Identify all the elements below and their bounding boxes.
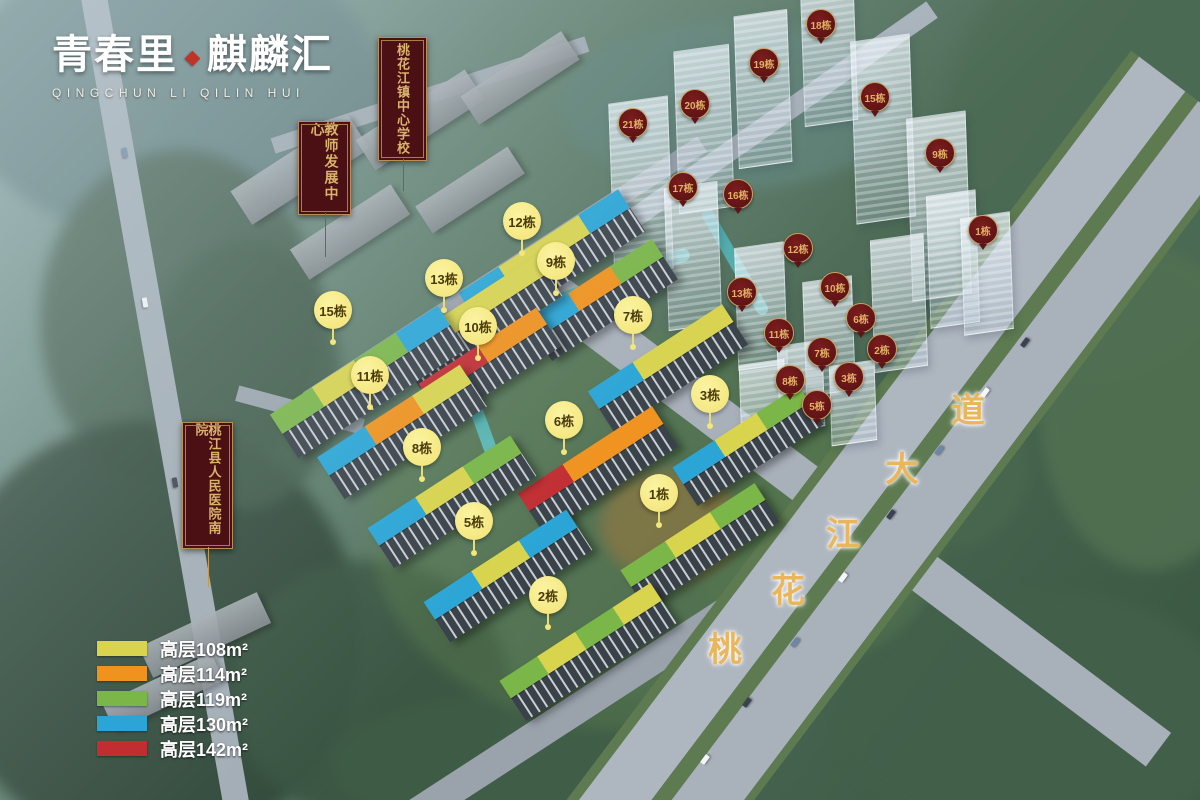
legend-color-swatch: [97, 641, 147, 656]
badge-pointer: [760, 77, 768, 83]
badge-pointer: [521, 240, 523, 250]
badge-pointer: [831, 301, 839, 307]
badge-pointer-dot: [545, 624, 551, 630]
badge-pointer-dot: [707, 423, 713, 429]
future-building-badge-17栋: 17栋: [668, 172, 698, 202]
legend-row: 高层119m²: [97, 691, 248, 706]
badge-pointer: [332, 329, 334, 339]
badge-pointer-dot: [441, 307, 447, 313]
badge-label: 1栋: [649, 484, 669, 503]
project-logo-title: 青春里 麒麟汇: [52, 22, 333, 80]
badge-pointer: [817, 38, 825, 44]
badge-pointer: [658, 512, 660, 522]
badge-label: 21栋: [622, 116, 643, 131]
building-badge-7栋: 7栋: [614, 296, 652, 334]
badge-pointer: [477, 345, 479, 355]
badge-label: 15栋: [864, 90, 885, 105]
badge-pointer: [473, 540, 475, 550]
callout-hospital-box: 桃江县人民医院南院: [182, 422, 233, 549]
badge-label: 11栋: [357, 366, 384, 385]
callout-teacher-center: 教师发展中心: [298, 121, 351, 215]
badge-label: 18栋: [810, 17, 831, 32]
future-building-badge-1栋: 1栋: [968, 215, 998, 245]
badge-label: 12栋: [508, 212, 535, 231]
future-building-badge-21栋: 21栋: [618, 108, 648, 138]
future-building-badge-12栋: 12栋: [783, 233, 813, 263]
badge-pointer: [691, 118, 699, 124]
road-name-char: 江: [826, 507, 860, 556]
building-badge-10栋: 10栋: [459, 307, 497, 345]
road-name-char: 大: [885, 442, 919, 491]
legend-color-swatch: [97, 666, 147, 681]
callout-teacher-center-box: 教师发展中心: [298, 121, 351, 215]
callout-hospital-text: 桃江县人民医院南院: [195, 423, 221, 548]
badge-label: 5栋: [809, 398, 825, 413]
badge-pointer: [629, 137, 637, 143]
building-badge-1栋: 1栋: [640, 474, 678, 512]
badge-label: 20栋: [684, 97, 705, 112]
badge-label: 6栋: [554, 411, 574, 430]
badge-label: 6栋: [853, 311, 869, 326]
building-badge-2栋: 2栋: [529, 576, 567, 614]
badge-pointer: [369, 394, 371, 404]
building-badge-6栋: 6栋: [545, 401, 583, 439]
legend-label: 高层119m²: [160, 686, 247, 712]
legend-color-swatch: [97, 741, 147, 756]
badge-pointer: [547, 614, 549, 624]
callout-school-leader-line: [403, 159, 404, 191]
badge-label: 11栋: [769, 326, 790, 341]
future-building-badge-15栋: 15栋: [860, 82, 890, 112]
road-name-char: 花: [771, 563, 805, 612]
callout-school-text: 桃花江镇中心学校: [396, 43, 409, 155]
badge-pointer-dot: [553, 290, 559, 296]
building-badge-12栋: 12栋: [503, 202, 541, 240]
building-badge-15栋: 15栋: [314, 291, 352, 329]
badge-pointer: [857, 332, 865, 338]
badge-label: 5栋: [464, 512, 484, 531]
future-building-badge-13栋: 13栋: [727, 277, 757, 307]
badge-label: 7栋: [623, 306, 643, 325]
callout-school: 桃花江镇中心学校: [378, 37, 427, 161]
badge-pointer-dot: [419, 476, 425, 482]
badge-label: 9栋: [546, 252, 566, 271]
badge-pointer: [734, 208, 742, 214]
badge-pointer: [679, 201, 687, 207]
legend-label: 高层142m²: [160, 736, 248, 762]
future-building-badge-16栋: 16栋: [723, 179, 753, 209]
logo-title-left: 青春里: [52, 22, 178, 80]
badge-label: 2栋: [538, 586, 558, 605]
building-badge-8栋: 8栋: [403, 428, 441, 466]
badge-label: 1栋: [975, 223, 991, 238]
future-building-badge-2栋: 2栋: [867, 334, 897, 364]
legend-row: 高层130m²: [97, 716, 248, 731]
callout-teacher-center-text: 教师发展中心: [311, 122, 339, 214]
project-logo-subtitle: QINGCHUN LI QILIN HUI: [52, 86, 333, 100]
future-building-badge-6栋: 6栋: [846, 303, 876, 333]
legend-color-swatch: [97, 691, 147, 706]
badge-label: 13栋: [430, 269, 457, 288]
badge-label: 10栋: [824, 280, 845, 295]
badge-pointer: [786, 394, 794, 400]
logo-title-right: 麒麟汇: [207, 22, 333, 80]
legend-row: 高层114m²: [97, 666, 248, 681]
building-badge-13栋: 13栋: [425, 259, 463, 297]
badge-pointer: [738, 306, 746, 312]
legend-row: 高层108m²: [97, 641, 248, 656]
legend: 高层108m²高层114m²高层119m²高层130m²高层142m²: [97, 641, 248, 766]
future-building-badge-11栋: 11栋: [764, 318, 794, 348]
badge-pointer-dot: [367, 404, 373, 410]
legend-color-swatch: [97, 716, 147, 731]
badge-pointer: [871, 111, 879, 117]
legend-label: 高层130m²: [160, 711, 248, 737]
badge-pointer: [563, 439, 565, 449]
road-name-char: 桃: [708, 622, 742, 671]
future-building-badge-19栋: 19栋: [749, 48, 779, 78]
badge-label: 8栋: [412, 438, 432, 457]
badge-label: 10栋: [464, 317, 491, 336]
badge-pointer: [878, 363, 886, 369]
callout-teacher-center-leader-line: [325, 213, 326, 257]
badge-label: 3栋: [700, 385, 720, 404]
badge-pointer: [443, 297, 445, 307]
badge-pointer: [818, 366, 826, 372]
legend-row: 高层142m²: [97, 741, 248, 756]
badge-pointer: [775, 347, 783, 353]
badge-label: 12栋: [787, 241, 808, 256]
future-building-badge-5栋: 5栋: [802, 390, 832, 420]
badge-pointer-dot: [471, 550, 477, 556]
badge-label: 9栋: [932, 146, 948, 161]
badge-pointer: [979, 244, 987, 250]
badge-pointer-dot: [656, 522, 662, 528]
badge-pointer-dot: [519, 250, 525, 256]
badge-label: 2栋: [874, 342, 890, 357]
badge-pointer-dot: [561, 449, 567, 455]
future-building-badge-10栋: 10栋: [820, 272, 850, 302]
badge-pointer: [813, 419, 821, 425]
badge-label: 3栋: [841, 370, 857, 385]
future-building-badge-9栋: 9栋: [925, 138, 955, 168]
callout-school-box: 桃花江镇中心学校: [378, 37, 427, 161]
badge-pointer: [421, 466, 423, 476]
future-building-badge-7栋: 7栋: [807, 337, 837, 367]
badge-label: 7栋: [814, 345, 830, 360]
road-name-char: 道: [951, 383, 985, 432]
badge-pointer-dot: [475, 355, 481, 361]
future-building-badge-18栋: 18栋: [806, 9, 836, 39]
badge-label: 17栋: [672, 180, 693, 195]
callout-hospital-leader-line: [208, 547, 209, 587]
building-badge-5栋: 5栋: [455, 502, 493, 540]
project-logo: 青春里 麒麟汇 QINGCHUN LI QILIN HUI: [52, 22, 333, 100]
badge-pointer: [709, 413, 711, 423]
callout-hospital: 桃江县人民医院南院: [182, 422, 233, 549]
red-diamond-icon: [185, 50, 201, 66]
future-building-badge-3栋: 3栋: [834, 362, 864, 392]
badge-pointer-dot: [330, 339, 336, 345]
masterplan-aerial-render: 18栋19栋15栋20栋21栋9栋17栋16栋1栋12栋10栋13栋6栋11栋7…: [0, 0, 1200, 800]
future-building-badge-20栋: 20栋: [680, 89, 710, 119]
badge-label: 13栋: [731, 285, 752, 300]
badge-label: 15栋: [319, 301, 346, 320]
badge-pointer: [555, 280, 557, 290]
badge-pointer: [845, 391, 853, 397]
building-badge-9栋: 9栋: [537, 242, 575, 280]
building-badge-11栋: 11栋: [351, 356, 389, 394]
badge-label: 8栋: [782, 373, 798, 388]
legend-label: 高层108m²: [160, 636, 248, 662]
badge-pointer: [936, 167, 944, 173]
badge-pointer: [794, 262, 802, 268]
badge-pointer-dot: [630, 344, 636, 350]
badge-pointer: [632, 334, 634, 344]
badge-label: 16栋: [727, 187, 748, 202]
future-building-badge-8栋: 8栋: [775, 365, 805, 395]
building-badge-3栋: 3栋: [691, 375, 729, 413]
badge-label: 19栋: [753, 56, 774, 71]
legend-label: 高层114m²: [160, 661, 247, 687]
